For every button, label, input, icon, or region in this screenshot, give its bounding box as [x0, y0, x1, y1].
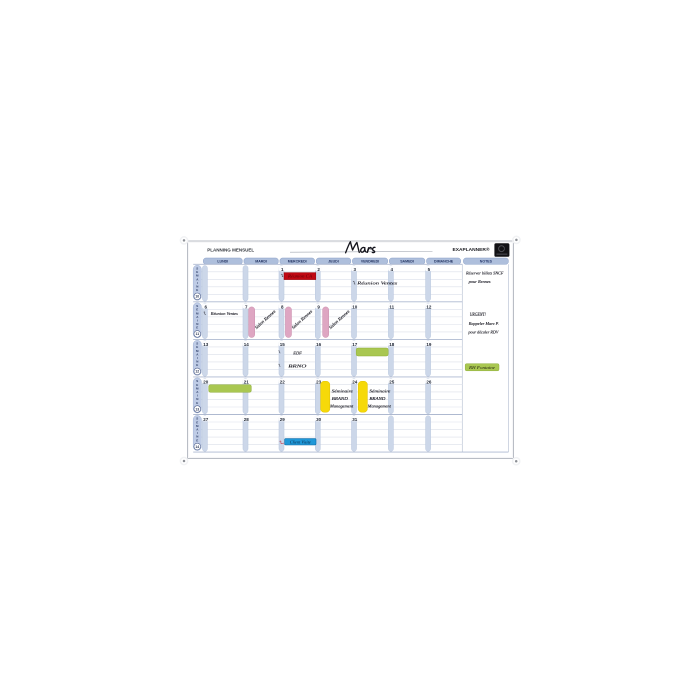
svg-text:E: E — [196, 363, 198, 367]
svg-text:18: 18 — [389, 342, 395, 347]
svg-text:10: 10 — [352, 304, 358, 309]
svg-text:14: 14 — [244, 342, 250, 347]
svg-text:24: 24 — [352, 380, 358, 385]
svg-text:13: 13 — [195, 407, 199, 411]
svg-text:E: E — [196, 438, 198, 442]
svg-text:Client Visite: Client Visite — [290, 440, 311, 444]
svg-text:26: 26 — [426, 380, 432, 385]
svg-text:BRNO: BRNO — [288, 364, 306, 369]
svg-text:Réunion Ventes: Réunion Ventes — [210, 311, 238, 316]
svg-text:28: 28 — [244, 417, 250, 422]
svg-text:DIMANCHE: DIMANCHE — [434, 260, 454, 264]
svg-text:NOTES: NOTES — [480, 260, 493, 264]
svg-text:pour Rennes: pour Rennes — [468, 279, 491, 284]
svg-text:27: 27 — [203, 417, 209, 422]
svg-text:URGENT!: URGENT! — [470, 313, 487, 318]
svg-text:SAMEDI: SAMEDI — [400, 260, 414, 264]
svg-text:12: 12 — [426, 304, 432, 309]
svg-text:Séminaire: Séminaire — [369, 389, 390, 394]
svg-text:25: 25 — [389, 380, 395, 385]
svg-text:EDF: EDF — [292, 350, 302, 355]
svg-text:MERCREDI: MERCREDI — [288, 260, 307, 264]
svg-text:Réunion CA: Réunion CA — [287, 274, 313, 279]
svg-text:BRAND: BRAND — [332, 396, 348, 401]
svg-text:pour décaler RDV: pour décaler RDV — [467, 329, 499, 334]
svg-text:30: 30 — [316, 417, 322, 422]
svg-text:10: 10 — [195, 295, 199, 299]
svg-text:Management: Management — [367, 404, 392, 409]
svg-text:14: 14 — [195, 445, 199, 449]
svg-text:31: 31 — [352, 417, 358, 422]
svg-text:22: 22 — [280, 380, 286, 385]
svg-text:11: 11 — [389, 304, 394, 309]
svg-text:MARDI: MARDI — [255, 260, 267, 264]
svg-text:Rappeler Marc P.: Rappeler Marc P. — [468, 321, 499, 326]
svg-text:E: E — [196, 401, 198, 405]
svg-text:Réunion Ventes: Réunion Ventes — [356, 280, 398, 285]
svg-text:VENDREDI: VENDREDI — [361, 260, 379, 264]
svg-text:E: E — [196, 288, 198, 292]
svg-text:Réserver billets SNCF: Réserver billets SNCF — [465, 271, 504, 276]
svg-text:Management: Management — [329, 404, 354, 409]
svg-text:13: 13 — [203, 342, 209, 347]
svg-text:EXAPLANNER®: EXAPLANNER® — [453, 246, 491, 252]
svg-text:E: E — [196, 326, 198, 330]
svg-text:11: 11 — [196, 332, 200, 336]
svg-text:BRAND: BRAND — [369, 396, 385, 401]
svg-text:16: 16 — [316, 342, 322, 347]
svg-text:LUNDI: LUNDI — [217, 260, 228, 264]
svg-text:PLANNING MENSUEL: PLANNING MENSUEL — [207, 247, 254, 253]
svg-text:RH Fontaine: RH Fontaine — [468, 365, 496, 370]
svg-text:15: 15 — [280, 342, 286, 347]
svg-text:21: 21 — [244, 380, 250, 385]
svg-text:12: 12 — [195, 370, 199, 374]
svg-text:29: 29 — [280, 417, 286, 422]
svg-text:17: 17 — [352, 342, 358, 347]
svg-text:19: 19 — [426, 342, 432, 347]
svg-text:20: 20 — [203, 380, 209, 385]
svg-text:JEUDI: JEUDI — [328, 260, 338, 264]
svg-text:Séminaire: Séminaire — [332, 389, 353, 394]
